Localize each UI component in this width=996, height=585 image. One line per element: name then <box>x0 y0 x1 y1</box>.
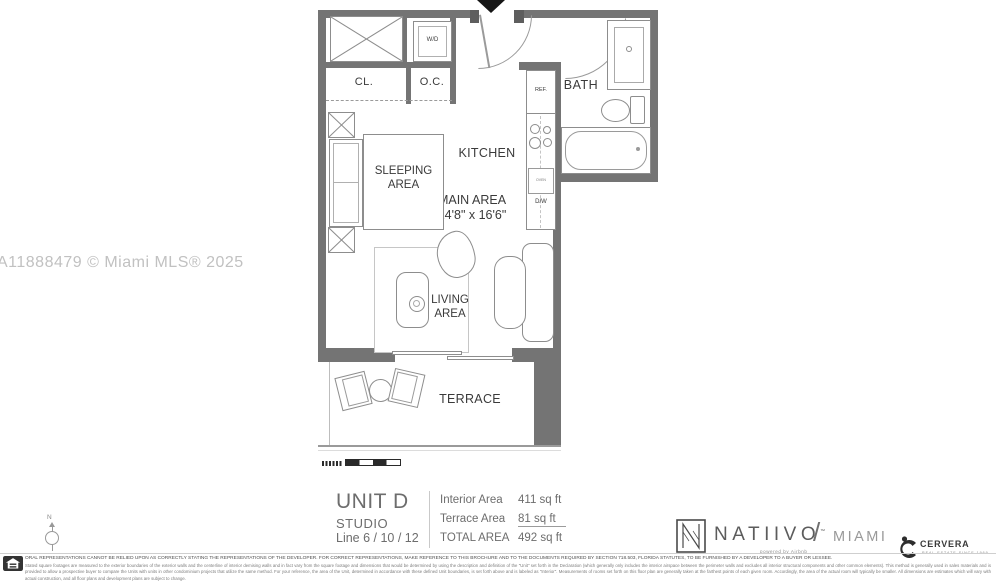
dishwasher-label: D/W <box>526 199 556 205</box>
area-row: Terrace Area 81 sq ft <box>440 513 566 532</box>
burner-icon <box>543 126 551 134</box>
terrace-label: TERRACE <box>438 392 502 406</box>
area-value: 492 sq ft <box>518 532 562 544</box>
sliding-door-panel <box>392 351 462 355</box>
nightstand-box <box>328 227 355 253</box>
nativo-logo-icon <box>676 519 706 553</box>
brand-separator: / <box>813 517 820 548</box>
bathtub-basin <box>565 131 647 170</box>
unit-name: UNIT D <box>336 490 409 514</box>
area-table: Interior Area 411 sq ft Terrace Area 81 … <box>440 494 566 551</box>
terrace-chair <box>334 371 372 411</box>
chair-cushion <box>342 374 369 406</box>
area-value: 411 sq ft <box>518 494 561 506</box>
closet-front-dashed-line <box>326 100 452 101</box>
entry-marker-triangle <box>477 0 505 13</box>
closet-label: CL. <box>326 76 402 88</box>
bed-headboard-cushion <box>333 143 359 223</box>
sofa-back <box>522 243 554 342</box>
wall-top-right <box>514 10 658 18</box>
wall-terrace-right <box>534 360 561 445</box>
area-label: Terrace Area <box>440 513 518 525</box>
washer-dryer-label: W/D <box>413 37 452 43</box>
scale-bar-ticks <box>322 461 343 466</box>
area-value: 81 sq ft <box>518 513 566 527</box>
wall-bath-right <box>650 10 658 182</box>
sofa-seat <box>494 256 526 329</box>
other-closet-label: O.C. <box>411 76 453 88</box>
terrace-bottom-line <box>318 445 561 447</box>
equal-housing-icon <box>3 556 23 571</box>
miami-label: MIAMI <box>833 529 887 545</box>
terrace-chair <box>388 368 426 408</box>
unit-info-divider <box>429 491 430 548</box>
bath-label: BATH <box>553 78 609 92</box>
nativo-wordmark: NATIIVO™ <box>714 524 825 546</box>
nativo-name: NATIIVO <box>714 524 820 545</box>
area-label: TOTAL AREA <box>440 532 518 544</box>
sink-icon <box>626 46 632 52</box>
nightstand-box <box>328 112 355 138</box>
vanity-counter <box>614 27 644 83</box>
area-row: Interior Area 411 sq ft <box>440 494 566 513</box>
oven-label: OVEN <box>528 178 554 182</box>
shaft-box <box>330 16 403 62</box>
terrace-bottom-line-2 <box>318 450 561 451</box>
x-cross-icon <box>331 17 402 61</box>
cushion-divider <box>333 182 359 183</box>
x-cross-icon <box>329 228 354 252</box>
unit-type: STUDIO <box>336 516 388 531</box>
wall-left <box>318 10 326 360</box>
wall-kitchen-top <box>519 62 561 70</box>
disclaimer-line1: ORAL REPRESENTATIONS CANNOT BE RELIED UP… <box>25 556 885 561</box>
area-label: Interior Area <box>440 494 518 506</box>
terrace-left-line <box>329 362 330 446</box>
footer-divider <box>0 553 996 554</box>
area-row: TOTAL AREA 492 sq ft <box>440 532 566 551</box>
x-cross-icon <box>329 113 354 137</box>
burner-icon <box>530 124 540 134</box>
mls-watermark: A11888479 © Miami MLS® 2025 <box>0 254 244 272</box>
sleeping-area-label: SLEEPING AREA <box>367 164 440 192</box>
scale-bar <box>345 459 401 466</box>
cervera-wordmark: CERVERA <box>920 539 969 549</box>
chair-cushion <box>391 372 418 404</box>
wall-closet-bottom <box>326 62 456 68</box>
floorplan-page: A11888479 © Miami MLS® 2025 <box>0 0 996 585</box>
compass-north-label: N <box>47 514 52 521</box>
kitchen-label: KITCHEN <box>447 146 527 160</box>
refrigerator-label: REF. <box>526 87 556 93</box>
burner-icon <box>543 138 552 147</box>
cervera-logo-icon <box>897 534 919 560</box>
wall-bath-bottom <box>556 174 658 182</box>
burner-icon <box>529 137 541 149</box>
toilet-bowl <box>601 99 630 122</box>
sliding-door-panel <box>447 356 514 360</box>
side-table-detail <box>413 300 420 307</box>
tub-faucet-icon <box>636 147 640 151</box>
disclaimer-body: Stated square footages are measured to t… <box>25 563 991 582</box>
trademark-symbol: ™ <box>820 529 825 535</box>
unit-line: Line 6 / 10 / 12 <box>336 531 419 545</box>
compass-circle-icon <box>45 531 59 545</box>
living-area-label: LIVING AREA <box>426 293 474 321</box>
toilet-tank <box>630 96 645 124</box>
